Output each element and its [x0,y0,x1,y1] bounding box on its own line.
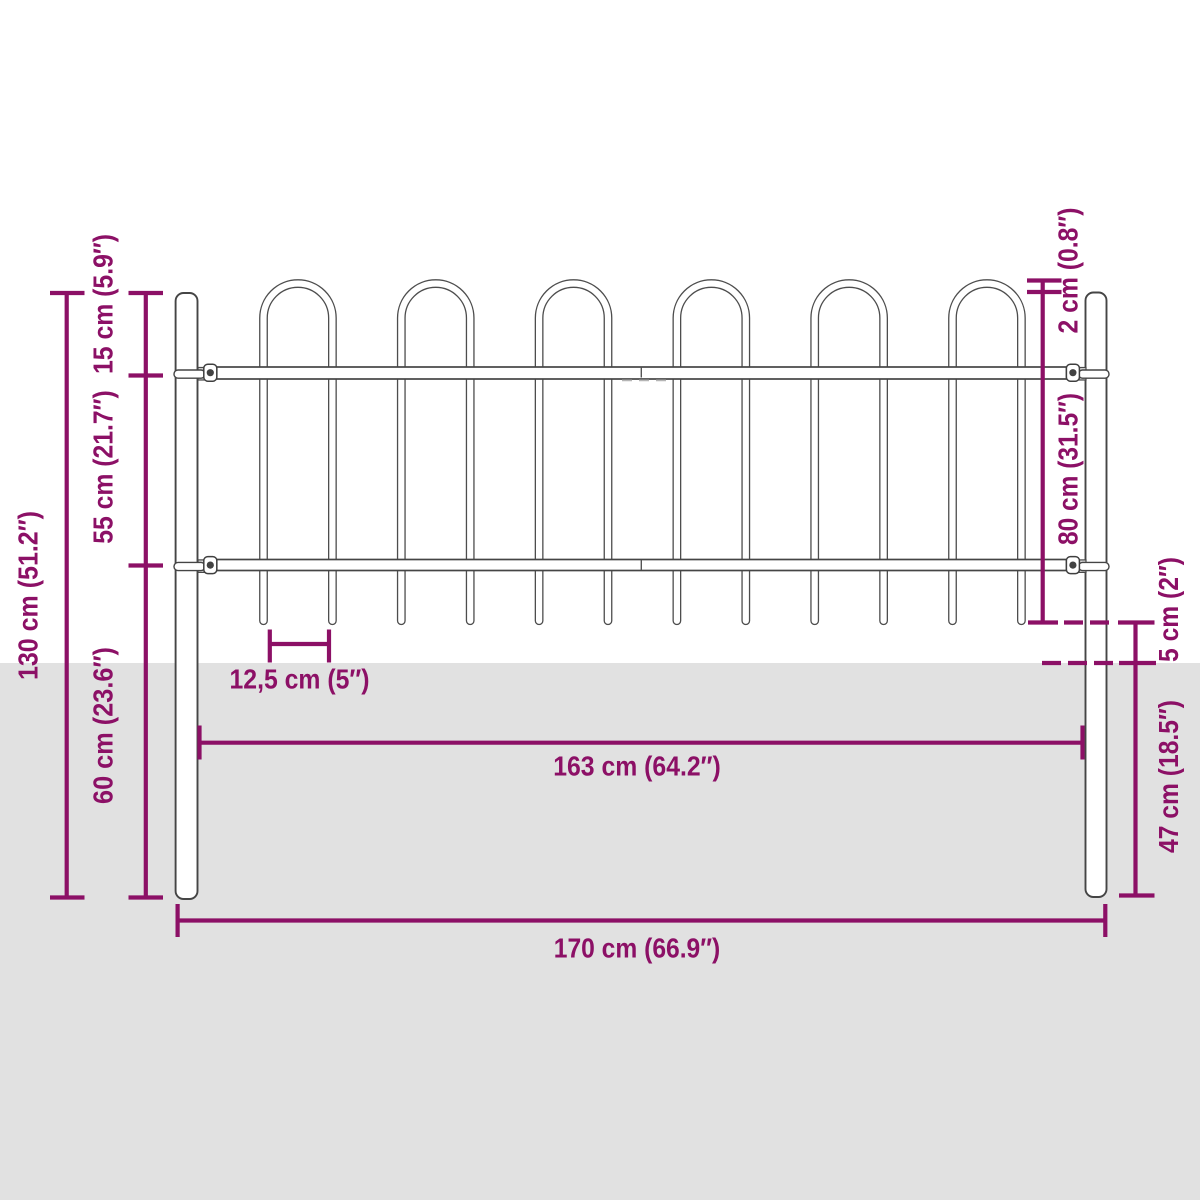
svg-text:2 cm (0.8″): 2 cm (0.8″) [1053,208,1084,334]
svg-text:47 cm (18.5″): 47 cm (18.5″) [1153,700,1184,853]
svg-text:60 cm (23.6″): 60 cm (23.6″) [88,647,119,804]
svg-text:55 cm (21.7″): 55 cm (21.7″) [88,390,119,544]
svg-text:15 cm (5.9″): 15 cm (5.9″) [88,234,119,374]
svg-text:80 cm (31.5″): 80 cm (31.5″) [1053,393,1084,545]
svg-text:5 cm (2″): 5 cm (2″) [1153,557,1184,662]
svg-text:163 cm (64.2″): 163 cm (64.2″) [553,751,721,782]
svg-text:12,5 cm (5″): 12,5 cm (5″) [230,664,370,695]
svg-text:170 cm (66.9″): 170 cm (66.9″) [554,933,721,964]
svg-text:130 cm (51.2″): 130 cm (51.2″) [13,511,44,680]
